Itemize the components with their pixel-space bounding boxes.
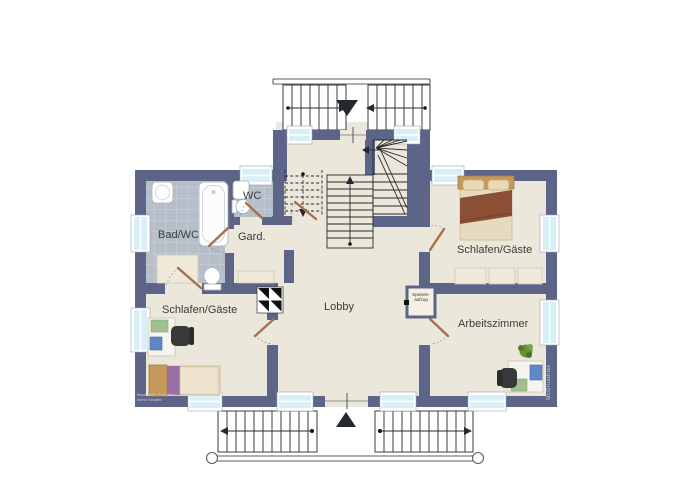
room-label-schlafen-left: Schlafen/Gäste xyxy=(162,304,237,316)
disclaimer-line2: keine Gewähr xyxy=(137,397,175,402)
bottom-terrace-stairs xyxy=(207,411,484,464)
window xyxy=(540,215,559,252)
floor-plan-page: Bad/WC WC Gard. Schlafen/Gäste Schlafen/… xyxy=(0,0,690,487)
bathtub xyxy=(199,182,228,246)
window xyxy=(468,392,506,411)
toilet xyxy=(204,268,221,291)
room-label-wc: WC xyxy=(243,190,261,202)
office-chair xyxy=(497,368,517,388)
bottom-terrace-railing xyxy=(207,453,484,464)
watermark-vertical: McGrundriss xyxy=(546,344,557,400)
room-label-bad-wc: Bad/WC xyxy=(158,229,199,241)
dumbwaiter-label-line2: aufzug xyxy=(408,297,434,302)
desk-left xyxy=(148,318,175,356)
window xyxy=(380,392,416,411)
floor-areas xyxy=(146,122,546,396)
disclaimer-text: Illustrativer Grundriss keine Gewähr xyxy=(137,392,175,402)
dumbwaiter-label: Speisen- aufzug xyxy=(408,292,434,302)
wardrobe-row xyxy=(455,268,542,284)
floor-plan-canvas xyxy=(0,0,690,487)
window xyxy=(131,215,150,252)
window xyxy=(287,126,312,144)
room-label-lobby: Lobby xyxy=(324,301,354,313)
top-stairs-right-flight xyxy=(366,85,430,130)
stairs-up-arrow-icon xyxy=(336,412,356,427)
bottom-stairs-left-flight xyxy=(218,411,317,452)
main-staircase xyxy=(327,175,373,248)
window xyxy=(540,300,559,345)
top-stairs-left-flight xyxy=(283,85,347,130)
washbasin xyxy=(152,182,173,203)
bottom-stairs-right-flight xyxy=(375,411,473,452)
window xyxy=(131,308,150,352)
room-label-arbeitszimmer: Arbeitszimmer xyxy=(458,318,528,330)
wardrobe-bench xyxy=(238,271,274,283)
chimney-icon xyxy=(257,287,283,313)
window xyxy=(277,392,313,411)
room-label-gard: Gard. xyxy=(238,231,266,243)
office-chair xyxy=(171,326,194,346)
room-label-schlafen-right: Schlafen/Gäste xyxy=(457,244,532,256)
double-bed xyxy=(458,176,514,240)
